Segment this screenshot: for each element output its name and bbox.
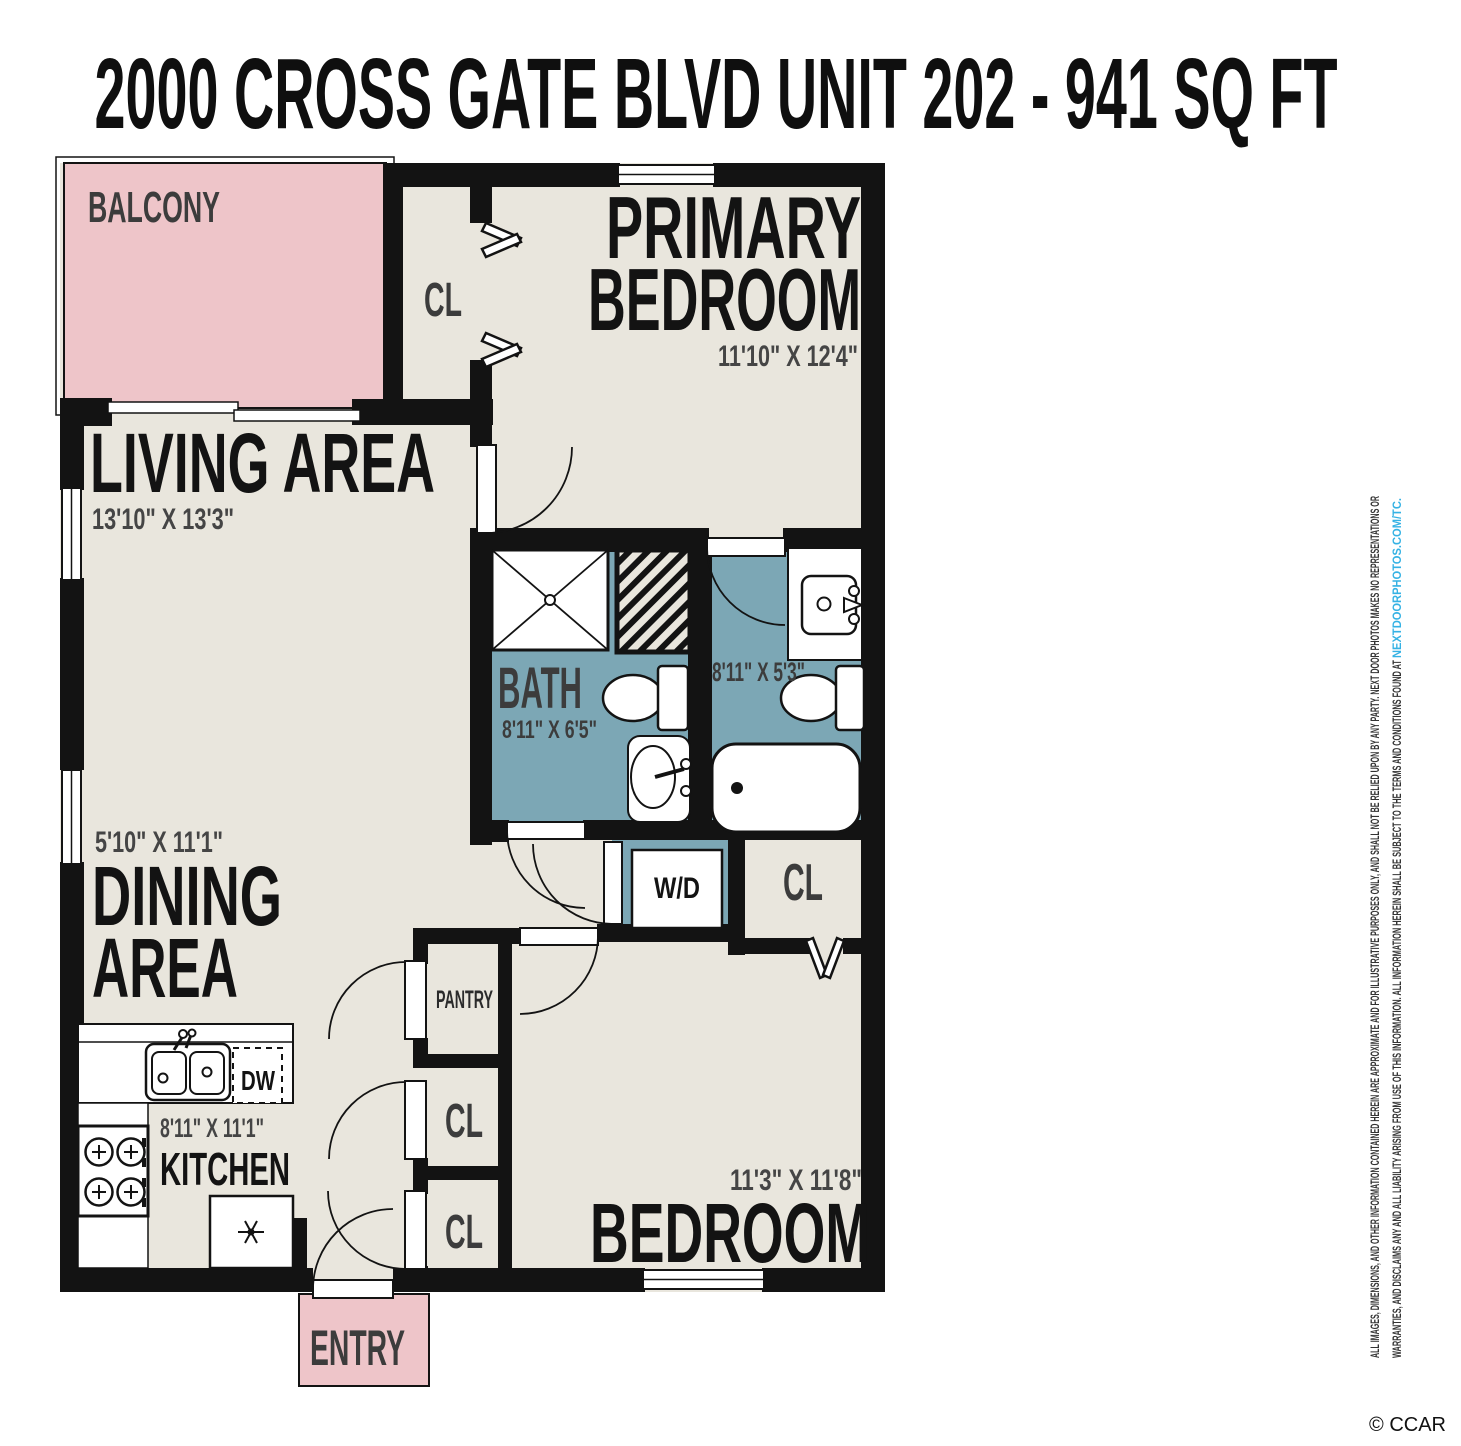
kitchen-label: KITCHEN	[160, 1143, 290, 1195]
ensuite-bath-dims: 8'11" X 5'3"	[712, 657, 805, 687]
closet-1-door-leaf	[405, 1081, 426, 1159]
disclaimer-terms-link[interactable]: NEXTDOORPHOTOS.COM/TC.	[1392, 498, 1404, 658]
disclaimer-line2: WARRANTIES, AND DISCLAIMS ANY AND ALL LI…	[1392, 498, 1404, 1358]
disclaimer-line2-text: WARRANTIES, AND DISCLAIMS ANY AND ALL LI…	[1392, 658, 1404, 1358]
primary-bedroom-door-leaf	[477, 445, 496, 533]
dining-area-label-line2: AREA	[92, 921, 238, 1015]
disclaimer-line1: ALL IMAGES, DIMENSIONS, AND OTHER INFORM…	[1370, 496, 1382, 1358]
ensuite-door-leaf	[707, 538, 785, 556]
bath-dims: 8'11" X 6'5"	[502, 716, 597, 744]
bedroom-label: BEDROOM	[590, 1186, 870, 1280]
entry-door-leaf	[313, 1280, 393, 1298]
entry-label: ENTRY	[310, 1320, 405, 1376]
bedroom-door-leaf	[520, 928, 598, 945]
sliding-door-panel-1	[108, 402, 238, 413]
kitchen-dims: 8'11" X 11'1"	[160, 1113, 264, 1143]
stove-icon	[78, 1126, 148, 1216]
pantry-label: PANTRY	[436, 986, 493, 1014]
ccar-credit: © CCAR	[1369, 1414, 1446, 1436]
primary-closet-label: CL	[424, 274, 462, 327]
bathtub-icon	[712, 744, 860, 832]
hall-closet-label: CL	[783, 854, 823, 912]
primary-bedroom-dims: 11'10" X 12'4"	[718, 340, 858, 373]
page-title: 2000 CROSS GATE BLVD UNIT 202 - 941 SQ F…	[95, 38, 1338, 150]
living-area-dims: 13'10" X 13'3"	[92, 503, 234, 536]
closet-2-door-leaf	[405, 1191, 426, 1269]
pedestal-sink-icon	[628, 736, 691, 822]
vanity-sink-icon	[788, 548, 862, 660]
dishwasher-label: DW	[241, 1065, 275, 1096]
disclaimer: ALL IMAGES, DIMENSIONS, AND OTHER INFORM…	[1370, 496, 1404, 1358]
floorplan-drawing: 2000 CROSS GATE BLVD UNIT 202 - 941 SQ F…	[0, 0, 1461, 1446]
washer-dryer-door-leaf	[604, 842, 622, 924]
closet-2-label: CL	[445, 1206, 483, 1259]
linen-closet-hatch	[617, 550, 690, 652]
primary-bedroom-label-line2: BEDROOM	[588, 250, 861, 349]
bath-label: BATH	[498, 656, 582, 721]
pantry-door-leaf	[405, 961, 426, 1039]
living-area-label: LIVING AREA	[90, 416, 435, 510]
refrigerator-icon	[210, 1196, 293, 1268]
hall-bath-door-leaf	[507, 822, 585, 839]
washer-dryer-label: W/D	[654, 872, 700, 905]
shower-icon	[492, 550, 608, 650]
closet-1-label: CL	[445, 1095, 483, 1148]
floorplan-page: 2000 CROSS GATE BLVD UNIT 202 - 941 SQ F…	[0, 0, 1461, 1446]
balcony-label: BALCONY	[88, 183, 220, 232]
